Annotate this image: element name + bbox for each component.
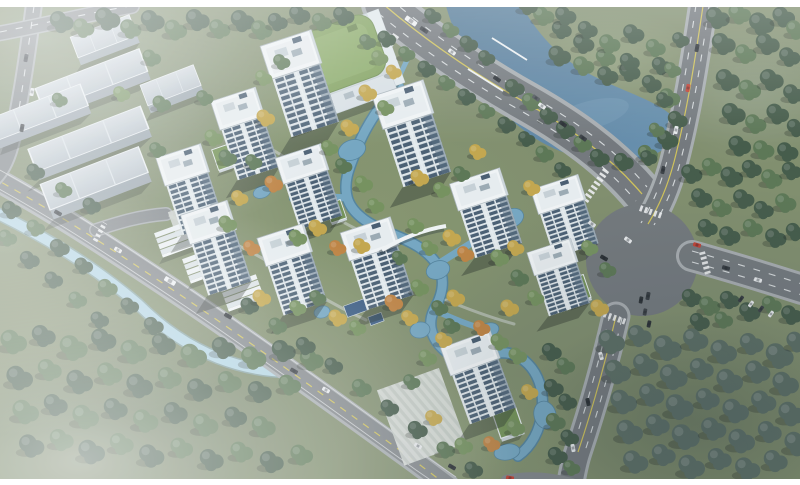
letterbox-bottom: [0, 479, 800, 485]
fog-overlay: [0, 0, 800, 485]
masterplan-rendering: [0, 0, 800, 485]
scene-svg: [0, 0, 800, 485]
letterbox-top: [0, 0, 800, 7]
